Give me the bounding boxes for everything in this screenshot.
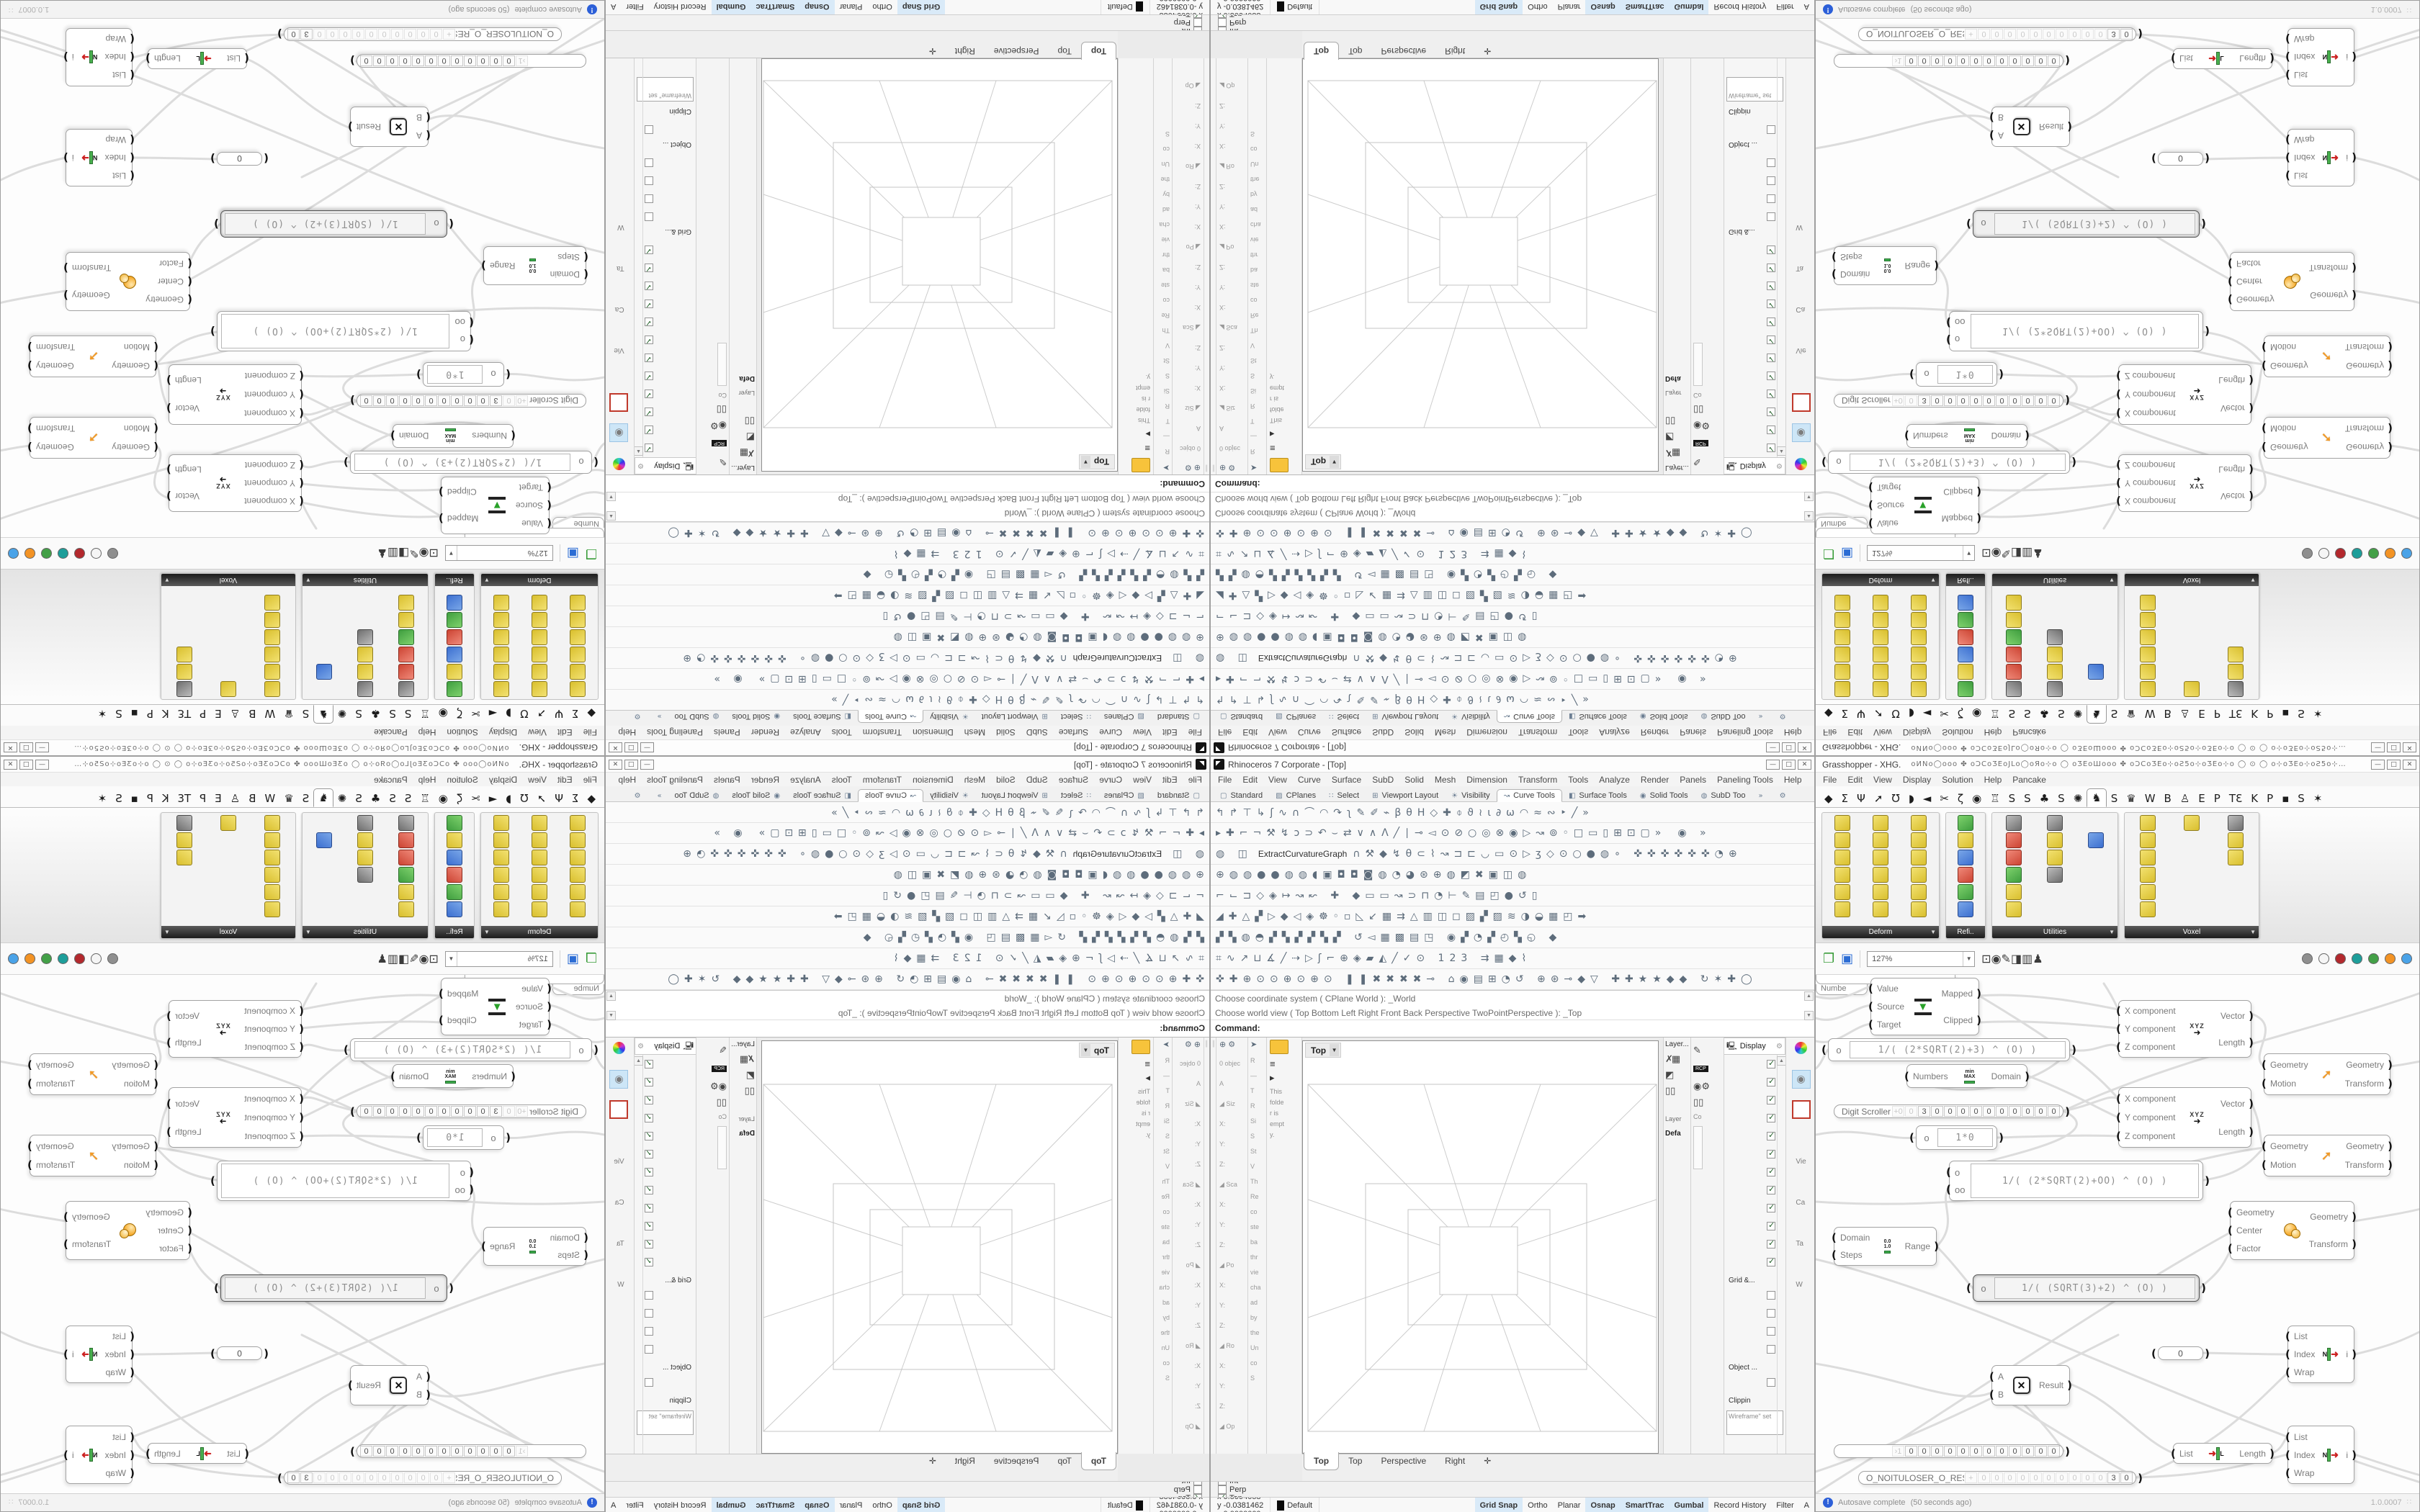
menu-item[interactable]: Curve — [1099, 728, 1122, 738]
digit-cell[interactable]: 0 — [1970, 55, 1982, 66]
component-icon[interactable] — [357, 815, 373, 831]
component-tab-icon[interactable]: ♣ — [2035, 705, 2053, 722]
folder-icon[interactable] — [1131, 458, 1150, 472]
checkbox[interactable] — [1767, 1327, 1775, 1336]
menu-item[interactable]: Dimension — [1466, 775, 1507, 785]
camera-tool-icon[interactable]: ◉⚙ — [1693, 1081, 1721, 1092]
gh-canvas[interactable]: Numbe (Value(Source(Target ▼ Mapped)Clip… — [1, 975, 604, 1493]
component-icon[interactable] — [1873, 815, 1888, 831]
output-port[interactable]: ) — [27, 422, 32, 435]
digit-cell[interactable]: 0 — [399, 1106, 411, 1117]
input-port[interactable]: ( — [2116, 1040, 2121, 1053]
window-button[interactable]: — — [2371, 760, 2385, 770]
output-port[interactable]: ) — [1999, 1131, 2004, 1144]
component-icon[interactable] — [398, 850, 414, 865]
component-icon[interactable] — [1834, 867, 1850, 883]
component-tab-icon[interactable]: S — [2053, 705, 2069, 722]
play-icon[interactable]: ▸ — [1120, 428, 1150, 440]
output-port[interactable]: ) — [1976, 1014, 1981, 1027]
rhino-titlebar[interactable]: Rhinoceros 7 Corporate - [Top] —□✕ — [1211, 757, 1814, 773]
input-port[interactable]: ( — [2228, 257, 2233, 270]
gh-node-expression[interactable]: ( o 1*0 ) — [423, 362, 504, 387]
menu-item[interactable]: File — [1188, 728, 1202, 738]
digit-cell[interactable]: 0 — [1978, 29, 1990, 40]
checkbox[interactable] — [645, 177, 653, 186]
digit-cell[interactable]: 0 — [378, 1472, 390, 1483]
menu-item[interactable]: Surface — [1059, 775, 1088, 785]
component-icon[interactable] — [176, 850, 192, 865]
component-tab-icon[interactable]: S — [2020, 790, 2035, 807]
output-port[interactable]: ) — [2025, 1070, 2030, 1083]
digit-cell[interactable]: 0 — [477, 1106, 489, 1117]
menu-item[interactable]: Paneling Tools — [647, 775, 703, 785]
digit-cell[interactable]: 0 — [430, 29, 442, 40]
viewport-tab[interactable]: Top — [1081, 1452, 1116, 1470]
checkbox[interactable] — [1767, 390, 1775, 399]
expression-field[interactable]: 1*0 — [1937, 365, 1993, 384]
component-icon[interactable] — [357, 850, 373, 865]
display-scrollbar[interactable]: ▲▼ — [635, 1055, 643, 1481]
output-port[interactable]: ) — [439, 486, 444, 499]
viewport-tab[interactable]: Top — [1049, 1452, 1081, 1470]
component-icon[interactable] — [570, 664, 586, 680]
component-icon[interactable] — [176, 647, 192, 662]
component-icon[interactable] — [570, 681, 586, 697]
component-tab-icon[interactable]: ♣ — [2035, 790, 2053, 807]
menu-item[interactable]: Mesh — [1435, 728, 1456, 738]
input-port[interactable]: ( — [1904, 1070, 1909, 1083]
digit-cell[interactable]: 0 — [1957, 55, 1969, 66]
properties-strip[interactable]: ✎ RCP ◉⚙ ▯▯ Co — [1690, 58, 1724, 474]
component-icon[interactable] — [1911, 647, 1927, 662]
output-port[interactable]: ) — [214, 217, 219, 230]
digit-cell[interactable]: 0 — [1918, 55, 1930, 66]
input-port[interactable]: ( — [299, 1130, 304, 1143]
digit-cell[interactable]: 0 — [1944, 1106, 1956, 1117]
status-toggle[interactable]: Gumbal — [712, 1498, 751, 1512]
menu-item[interactable]: Edit — [1847, 775, 1863, 785]
display-option-row[interactable] — [635, 241, 696, 259]
rhino-titlebar[interactable]: Rhinoceros 7 Corporate - [Top] —□✕ — [1211, 739, 1814, 755]
component-icon[interactable] — [447, 901, 462, 917]
digit-cell[interactable]: 0 — [1970, 1446, 1982, 1457]
preview-mode-icon[interactable] — [107, 953, 118, 964]
component-icon[interactable] — [447, 815, 462, 831]
component-tab-icon[interactable]: Ψ — [550, 705, 568, 722]
output-port[interactable]: ) — [2352, 51, 2357, 64]
status-toggle[interactable]: Gumbal — [1670, 1498, 1709, 1512]
viewport-tab[interactable]: Top — [1339, 42, 1371, 60]
canvas-tool-icon[interactable]: ⊡ — [429, 547, 438, 561]
boxedit-panel[interactable]: ⊕⚙ 0 objecA◢ SizX:Y:Z:◢ ScaX:Y:Z:◢ PoX:Y… — [1216, 1038, 1248, 1454]
toolbar-row[interactable]: ◢✚△▞▷◆◁◈☸◦▫◺↙▦⇉△▥◫◻▨▞▨≋◑◒▦◰➡ — [1211, 906, 1814, 927]
menu-item[interactable]: Solid — [1404, 775, 1424, 785]
component-tab-icon[interactable]: TƐ — [174, 790, 195, 807]
viewport-tab[interactable]: Top — [1304, 42, 1339, 60]
menu-item[interactable]: Solution — [447, 728, 478, 738]
component-icon[interactable] — [1873, 832, 1888, 848]
checkbox[interactable] — [1767, 372, 1775, 381]
component-icon[interactable] — [447, 832, 462, 848]
window-button[interactable]: ✕ — [609, 743, 622, 753]
gh-node-expression[interactable]: ( o 1/( (2*SQRT(2)+3) ^ (O) ) ) — [1828, 451, 2070, 474]
palette-group-bar[interactable]: Voxel▼ — [2125, 926, 2259, 938]
display-option-row[interactable] — [635, 1235, 696, 1253]
component-tab-icon[interactable]: ζ — [452, 790, 467, 807]
toolbar-tab[interactable]: » — [647, 711, 668, 721]
digit-cell[interactable]: + — [1965, 1472, 1977, 1483]
gear-icon[interactable]: ⚙ — [1776, 462, 1783, 470]
menu-item[interactable]: Help — [1984, 775, 2002, 785]
input-port[interactable]: ( — [2116, 369, 2121, 382]
menu-item[interactable]: Solution — [1942, 775, 1973, 785]
status-toggle[interactable]: A — [1799, 0, 1814, 14]
menu-icon[interactable]: ≡ — [1120, 443, 1150, 454]
component-icon[interactable] — [264, 612, 280, 628]
digit-cell[interactable]: 0 — [503, 1106, 515, 1117]
checkbox[interactable] — [645, 282, 653, 291]
output-port[interactable]: ) — [2352, 1238, 2357, 1251]
output-port[interactable]: ) — [2269, 53, 2275, 66]
display-setting-box[interactable]: Wireframe" set — [1726, 1410, 1783, 1435]
checkbox[interactable] — [1767, 126, 1775, 135]
checkbox[interactable] — [1767, 1345, 1775, 1354]
play-icon[interactable]: ▸ — [1120, 1072, 1150, 1084]
component-icon[interactable] — [532, 884, 547, 900]
pages-icon[interactable]: ▯▯ — [699, 1097, 727, 1108]
digit-cell[interactable]: 0 — [404, 1472, 416, 1483]
input-port[interactable]: ( — [2171, 53, 2176, 66]
menu-item[interactable]: View — [1133, 728, 1152, 738]
input-port[interactable]: ( — [2285, 33, 2290, 46]
component-icon[interactable] — [264, 664, 280, 680]
input-port[interactable]: ( — [299, 1040, 304, 1053]
digit-cell[interactable]: 0 — [1996, 55, 2008, 66]
component-tab-icon[interactable]: K — [158, 705, 174, 722]
gh-node-move[interactable]: (Geometry(Motion ➚ Geometry)Transform) — [30, 1053, 156, 1095]
canvas-tool-icon[interactable]: ◨ — [398, 952, 409, 966]
canvas-tool-icon[interactable]: ◨ — [2011, 952, 2022, 966]
menu-item[interactable]: Help — [1784, 728, 1802, 738]
component-icon[interactable] — [532, 629, 547, 645]
component-tab-icon[interactable]: ✺ — [333, 790, 351, 807]
input-port[interactable]: ( — [264, 1347, 269, 1360]
input-port[interactable]: ( — [2228, 1206, 2233, 1219]
component-tab-icon[interactable]: Ʊ — [1887, 790, 1904, 807]
display-scrollbar[interactable]: ▲▼ — [635, 31, 643, 457]
digit-cell[interactable]: 0 — [1970, 1106, 1982, 1117]
input-port[interactable]: ( — [2116, 1130, 2121, 1143]
digit-cell[interactable]: 0 — [386, 55, 398, 66]
component-tab-icon[interactable]: B — [2160, 790, 2176, 807]
component-icon[interactable] — [398, 595, 414, 611]
toolbar-row[interactable]: ◢✚△▞▷◆◁◈☸◦▫◺↙▦⇉△▥◫◻▨▞▨≋◑◒▦◰➡ — [1211, 585, 1814, 606]
menu-item[interactable]: Solid — [996, 775, 1016, 785]
checkbox[interactable] — [1767, 159, 1775, 168]
status-toggle[interactable]: Planar — [1553, 0, 1586, 14]
component-tab-icon[interactable]: S — [385, 705, 400, 722]
component-tab-icon[interactable]: W — [260, 790, 279, 807]
component-icon[interactable] — [1911, 595, 1927, 611]
checkbox[interactable] — [1767, 426, 1775, 435]
folder-icon[interactable] — [1270, 1040, 1289, 1054]
checkbox[interactable] — [645, 1150, 653, 1158]
output-port[interactable]: ) — [2249, 464, 2254, 477]
display-option-row[interactable] — [635, 1373, 696, 1391]
toolbar-row[interactable]: ↰↱⊤↳ʃ∿∩⌒◠↷ʅ✎✐⌁βθΗ◇✚⌽ϑ≀ι∂ω◠≈∾‣╱» — [1211, 802, 1814, 823]
output-port[interactable]: ) — [2025, 430, 2030, 443]
window-button[interactable]: □ — [1782, 743, 1796, 753]
status-toggle[interactable]: Record History — [649, 0, 712, 14]
digit-cell[interactable]: 0 — [425, 1106, 437, 1117]
input-port[interactable]: ( — [130, 33, 135, 46]
component-icon[interactable] — [2228, 647, 2244, 662]
input-port[interactable]: ( — [299, 1092, 304, 1105]
input-port[interactable]: ( — [153, 1140, 158, 1153]
input-port[interactable]: ( — [153, 341, 158, 354]
window-button[interactable]: — — [640, 760, 654, 770]
output-port[interactable]: ) — [277, 1472, 282, 1485]
toolbar-row[interactable]: ⊕◍◍●●◍◍◖▣◘◘◙◍◔◕⊛⊕◍◩✖▣◫◍ — [606, 865, 1209, 886]
gh-node-expression-selected[interactable]: ( o 1/( (SQRT(3)+2) ^ (O) ) ) — [220, 210, 447, 238]
zoom-select[interactable]: 127%▼ — [1867, 951, 1975, 967]
component-icon[interactable] — [1834, 629, 1850, 645]
gh-node-vector-xyz[interactable]: (X component(Y component(Z component XYZ… — [169, 1000, 302, 1058]
menu-item[interactable]: Edit — [557, 775, 573, 785]
toolbar-row[interactable]: ▸✚⌐¬⚒↯ɔ⊃↶⌣⇄∨∧Λ╱∣⊸◅⊙⊘○◎⊗◉▷↝⊚◦□▭▯⊞⊡▢»◉ » — [606, 823, 1209, 844]
toolbar-tab[interactable]: ◉Solid Tools — [1633, 711, 1695, 722]
digit-cell[interactable]: 0 — [313, 1472, 326, 1483]
output-port[interactable]: ) — [350, 1445, 355, 1458]
render-frame-icon[interactable] — [610, 393, 629, 412]
toolbar-row[interactable]: ⌐⌙⊐◇◈↦↝↜ ✚ ◆▭▭↝⊃⊓◔⊢✎▤◰●↺▯ — [1211, 606, 1814, 626]
display-option-row[interactable] — [635, 1181, 696, 1199]
output-port[interactable]: ) — [1999, 368, 2004, 381]
checkbox[interactable] — [645, 426, 653, 435]
component-tab-icon[interactable]: ◗ — [501, 790, 516, 807]
checkbox[interactable] — [1767, 1114, 1775, 1122]
save-file-icon[interactable]: ▣ — [1841, 546, 1853, 561]
component-icon[interactable] — [570, 867, 586, 883]
digit-cell[interactable]: 0 — [2035, 395, 2047, 406]
component-icon[interactable] — [1834, 832, 1850, 848]
component-tab-icon[interactable]: Ψ — [550, 790, 568, 807]
checkbox[interactable] — [1767, 318, 1775, 327]
output-port[interactable]: ) — [210, 153, 215, 166]
component-icon[interactable] — [1958, 867, 1973, 883]
status-toggle[interactable]: Planar — [1553, 1498, 1586, 1512]
camera-tool-icon[interactable]: ◉⚙ — [699, 1081, 727, 1092]
gh-node-move[interactable]: (Geometry(Motion ➚ Geometry)Transform) — [30, 417, 156, 459]
digit-cell[interactable]: +0 — [1892, 1106, 1904, 1117]
side-tab-label[interactable]: Ta — [614, 1240, 624, 1248]
digit-cell[interactable]: 0 — [2056, 1472, 2068, 1483]
checkbox[interactable] — [1767, 1309, 1775, 1318]
toolbar-row[interactable]: ⌗∿↗⊔∡╱⇢▷ʃ⌐⊕◈▰◭╱✓⊙ 123 ⇉▦◆⌇ — [1211, 948, 1814, 969]
component-icon[interactable] — [220, 815, 236, 831]
digit-cell[interactable]: 0 — [2043, 1472, 2055, 1483]
palette-group-bar[interactable]: Utilities▼ — [1992, 574, 2117, 586]
component-tab-icon[interactable]: ζ — [1953, 790, 1968, 807]
input-port[interactable]: ( — [511, 430, 516, 443]
toolbar-row[interactable]: ✜✚⊕⊙⊙⊕⊙⊕⊙ ❚❚✖✖✖✖⊸ ⌂◉▤⊞◔↺ ⊕⊛⊸◆▽ ✚✚★★◆◆ ↻✶… — [1211, 969, 1814, 990]
component-icon[interactable] — [2140, 901, 2156, 917]
component-icon[interactable] — [1958, 595, 1973, 611]
digit-cell[interactable]: 0 — [490, 55, 502, 66]
canvas-tool-icon[interactable]: ◨ — [398, 547, 409, 561]
properties-strip[interactable]: ✎ RCP ◉⚙ ▯▯ Co — [696, 58, 730, 474]
component-tab-icon[interactable]: ♞ — [2087, 788, 2106, 807]
help-panel[interactable]: ➤ R—TRSiSStVThRecostebathrviechaadbytheU… — [1248, 58, 1267, 474]
viewport-dropdown-icon[interactable]: ▼ — [1330, 456, 1339, 468]
scroll-down-icon[interactable]: ▼ — [606, 492, 616, 501]
toolbar-tab[interactable]: ☀Visibility — [923, 711, 975, 722]
component-icon[interactable] — [2140, 664, 2156, 680]
zoom-select[interactable]: 127%▼ — [445, 951, 553, 967]
palette-group-bar[interactable]: Utilities▼ — [302, 574, 428, 586]
digit-cell[interactable]: 0 — [1931, 1446, 1943, 1457]
scroll-up-icon[interactable]: ▲ — [1804, 511, 1814, 521]
layer-item-default[interactable]: Defa — [1665, 374, 1689, 382]
component-icon[interactable] — [532, 595, 547, 611]
component-icon[interactable] — [493, 815, 509, 831]
preview-mode-icon[interactable] — [74, 548, 85, 559]
menu-item[interactable]: Pancake — [374, 728, 408, 738]
layer-item-default[interactable]: Defa — [1665, 1130, 1689, 1138]
gh-node-move[interactable]: (Geometry(Motion ➚ Geometry)Transform) — [2264, 417, 2390, 459]
output-port[interactable]: ) — [2388, 1140, 2393, 1153]
toolbar-tab[interactable]: ⚙ — [1773, 791, 1796, 801]
viewport-tab[interactable]: Top — [1049, 42, 1081, 60]
expression-field[interactable]: 1/( (2*SQRT(2)+3) ^ (O) ) — [1850, 454, 2066, 471]
gh-node-expression[interactable]: (o(oo 1/( (2*SQRT(2)+OO) ^ (O) ) ) — [217, 1161, 471, 1201]
gh-node-construct-domain[interactable]: (Numbers minMAX Domain) — [393, 1064, 514, 1088]
input-port[interactable]: ( — [1868, 1018, 1873, 1031]
component-tab-icon[interactable]: ✺ — [2069, 790, 2087, 807]
checkbox[interactable] — [645, 354, 653, 363]
viewport-tab[interactable]: Right — [946, 1452, 985, 1470]
digit-cell[interactable]: 0 — [1957, 1106, 1969, 1117]
panel-grip[interactable] — [1204, 1038, 1209, 1454]
expression-field[interactable]: 1/( (2*SQRT(2)+3) ^ (O) ) — [354, 454, 570, 471]
right-tab-strip[interactable]: ◉ VieCaTaW — [1785, 1038, 1814, 1481]
menu-item[interactable]: View — [528, 775, 547, 785]
menu-item[interactable]: File — [1218, 728, 1232, 738]
toolbar-tab[interactable]: ⚙ — [624, 791, 647, 801]
component-icon[interactable] — [1911, 901, 1927, 917]
camera-panel-icon[interactable]: ◉ — [610, 1070, 629, 1089]
layer-item-default[interactable]: Defa — [731, 374, 755, 382]
side-tab-label[interactable]: Vie — [1796, 346, 1806, 354]
gh-node-vector-xyz[interactable]: (X component(Y component(Z component XYZ… — [2118, 364, 2251, 425]
window-button[interactable]: □ — [19, 743, 33, 753]
digit-cell[interactable]: 0 — [2048, 395, 2060, 406]
window-button[interactable]: □ — [19, 760, 33, 770]
menu-item[interactable]: Panels — [1680, 775, 1706, 785]
component-icon[interactable] — [357, 629, 373, 645]
layer-state-icon[interactable]: ✗▦ — [731, 1054, 755, 1065]
component-icon[interactable] — [532, 664, 547, 680]
camera-tool-icon[interactable]: ◉⚙ — [1693, 420, 1721, 431]
component-tab-icon[interactable]: ♙ — [226, 790, 244, 807]
input-port[interactable]: ( — [153, 422, 158, 435]
toolbar-tab[interactable]: ∷Select — [1322, 790, 1366, 801]
scroll-down-icon[interactable]: ▼ — [1804, 492, 1814, 501]
menu-item[interactable]: Mesh — [964, 728, 985, 738]
gh-node-resolution-slider[interactable]: O_NOITULOSER_O_RESOLUTION_O +00000000003… — [1858, 27, 2136, 41]
toolbar-tab[interactable]: ⚙ — [624, 711, 647, 721]
digit-cell[interactable]: 0 — [451, 1106, 463, 1117]
render-frame-icon[interactable] — [1792, 393, 1811, 412]
command-history-scrollbar[interactable]: ▲▼ — [606, 492, 616, 521]
status-toggle[interactable]: A — [606, 0, 621, 14]
resize-grip[interactable]: ∷ — [2407, 6, 2412, 14]
component-icon[interactable] — [570, 595, 586, 611]
status-toggle[interactable]: Osnap — [799, 0, 834, 14]
component-icon[interactable] — [1958, 629, 1973, 645]
gh-titlebar[interactable]: Grasshopper - XHG. oИNo◯ooo ✤ oƆCoƷEoJLo… — [1, 757, 604, 773]
side-tab-label[interactable]: W — [1796, 1281, 1806, 1289]
input-port[interactable]: ( — [1909, 368, 1914, 381]
input-port[interactable]: ( — [2262, 1140, 2267, 1153]
right-tab-strip[interactable]: ◉ VieCaTaW — [606, 1038, 635, 1481]
component-tab-icon[interactable]: S — [400, 705, 416, 722]
output-port[interactable]: ) — [27, 1158, 32, 1171]
digit-cell[interactable]: 0 — [417, 29, 429, 40]
gh-titlebar[interactable]: Grasshopper - XHG. oИNo◯ooo ✤ oƆCoƷEoJLo… — [1816, 739, 2419, 755]
gh-node-multiplication[interactable]: (A(B ✕ Result) — [1991, 107, 2070, 147]
preview-mode-icon[interactable] — [107, 548, 118, 559]
digit-cell[interactable]: 0 — [2056, 29, 2068, 40]
status-toggle[interactable]: SmartTrac — [751, 0, 800, 14]
component-tab-icon[interactable]: P — [143, 790, 158, 807]
window-button[interactable]: — — [35, 760, 49, 770]
output-port[interactable]: ) — [27, 341, 32, 354]
layer-page-icon[interactable]: ▯▯ — [731, 415, 755, 426]
digit-cell[interactable]: 0 — [1983, 1446, 1995, 1457]
component-tab-icon[interactable]: P — [2210, 790, 2225, 807]
component-tab-icon[interactable]: ♛ — [2122, 790, 2140, 807]
component-icon[interactable] — [2047, 867, 2063, 883]
component-icon[interactable] — [398, 901, 414, 917]
preview-mode-icon[interactable] — [8, 953, 19, 964]
component-tab-icon[interactable]: ▪ — [127, 790, 143, 807]
component-icon[interactable] — [1911, 884, 1927, 900]
component-tab-icon[interactable]: ✂ — [1935, 705, 1953, 722]
digit-cell[interactable]: 0 — [490, 1446, 502, 1457]
component-tab-icon[interactable]: TƐ — [2225, 790, 2246, 807]
palette-group-bar[interactable]: Refi.. — [435, 574, 474, 586]
menu-item[interactable]: Display — [1903, 775, 1931, 785]
gh-node-expression[interactable]: (o(oo 1/( (2*SQRT(2)+OO) ^ (O) ) ) — [1949, 1161, 2203, 1201]
input-port[interactable]: ( — [2285, 1449, 2290, 1462]
display-panel-header[interactable]: 🖳 Display ⚙ — [635, 457, 696, 474]
component-icon[interactable] — [2006, 664, 2022, 680]
component-tab-icon[interactable]: TƐ — [174, 705, 195, 722]
resize-grip[interactable]: ∷ — [8, 1498, 13, 1506]
status-segment[interactable]: y -0.0381462 — [1149, 3, 1209, 12]
component-icon[interactable] — [570, 815, 586, 831]
input-port[interactable]: ( — [2285, 1431, 2290, 1444]
component-tab-icon[interactable]: ♖ — [1986, 790, 2004, 807]
component-icon[interactable] — [1911, 815, 1927, 831]
canvas-tool-icon[interactable]: ◉ — [1991, 952, 2002, 966]
side-tab-label[interactable]: Ta — [1796, 1240, 1806, 1248]
gh-node-list-item[interactable]: (List(Index(Wrap N➜ i) — [2287, 129, 2354, 186]
gh-node-move[interactable]: (Geometry(Motion ➚ Geometry)Transform) — [30, 1135, 156, 1176]
layer-panel[interactable]: Layer... ✗▦ ◩ ▯▯ Layer Defa — [730, 58, 757, 474]
component-icon[interactable] — [2047, 629, 2063, 645]
